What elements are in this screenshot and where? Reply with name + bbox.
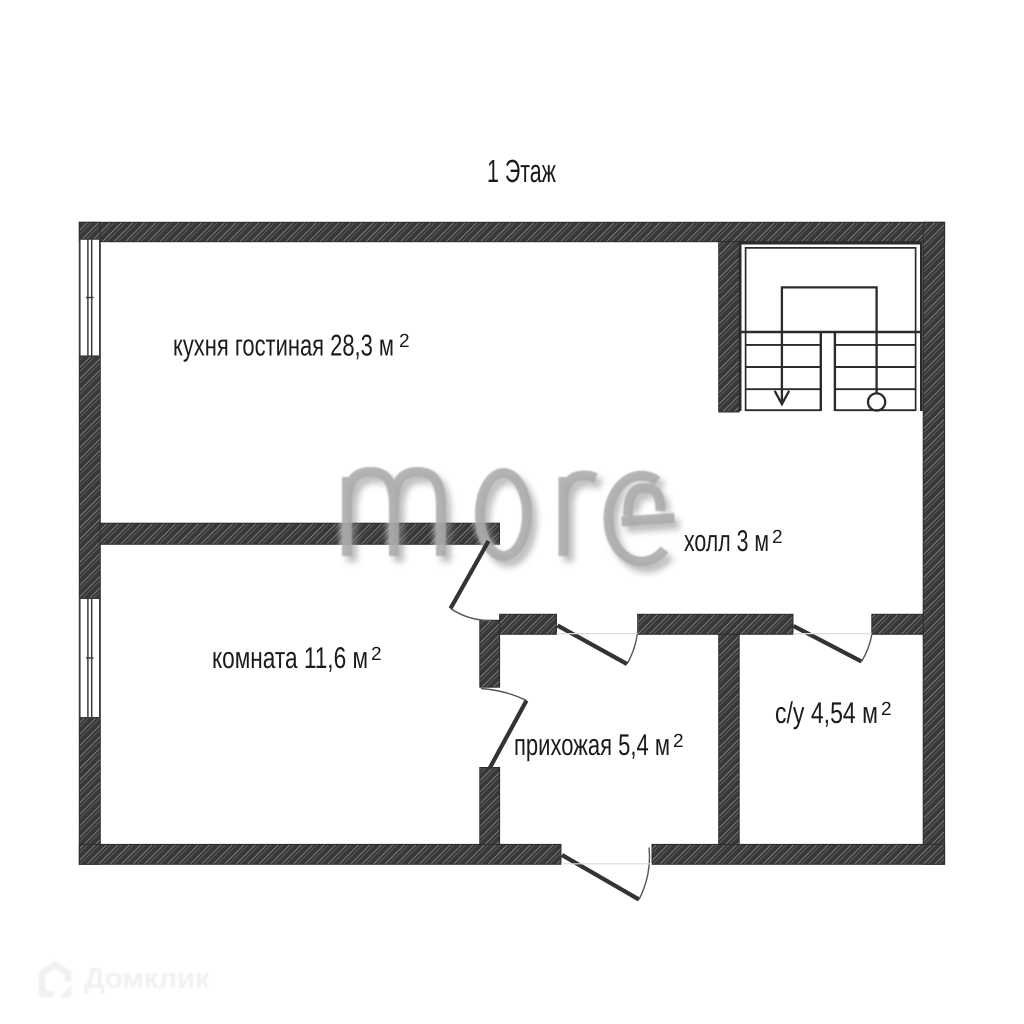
- svg-text:кухня гостиная 28,3 м: кухня гостиная 28,3 м: [173, 330, 394, 363]
- svg-text:прихожая 5,4 м: прихожая 5,4 м: [514, 729, 670, 762]
- svg-text:2: 2: [772, 527, 783, 548]
- svg-text:2: 2: [881, 699, 892, 720]
- svg-text:с/у 4,54 м: с/у 4,54 м: [775, 697, 878, 730]
- svg-text:холл 3 м: холл 3 м: [684, 525, 769, 558]
- svg-text:комната 11,6 м: комната 11,6 м: [212, 642, 368, 675]
- svg-text:1 Этаж: 1 Этаж: [487, 153, 556, 189]
- svg-text:2: 2: [371, 644, 382, 665]
- svg-text:2: 2: [673, 731, 684, 752]
- svg-text:2: 2: [399, 331, 410, 352]
